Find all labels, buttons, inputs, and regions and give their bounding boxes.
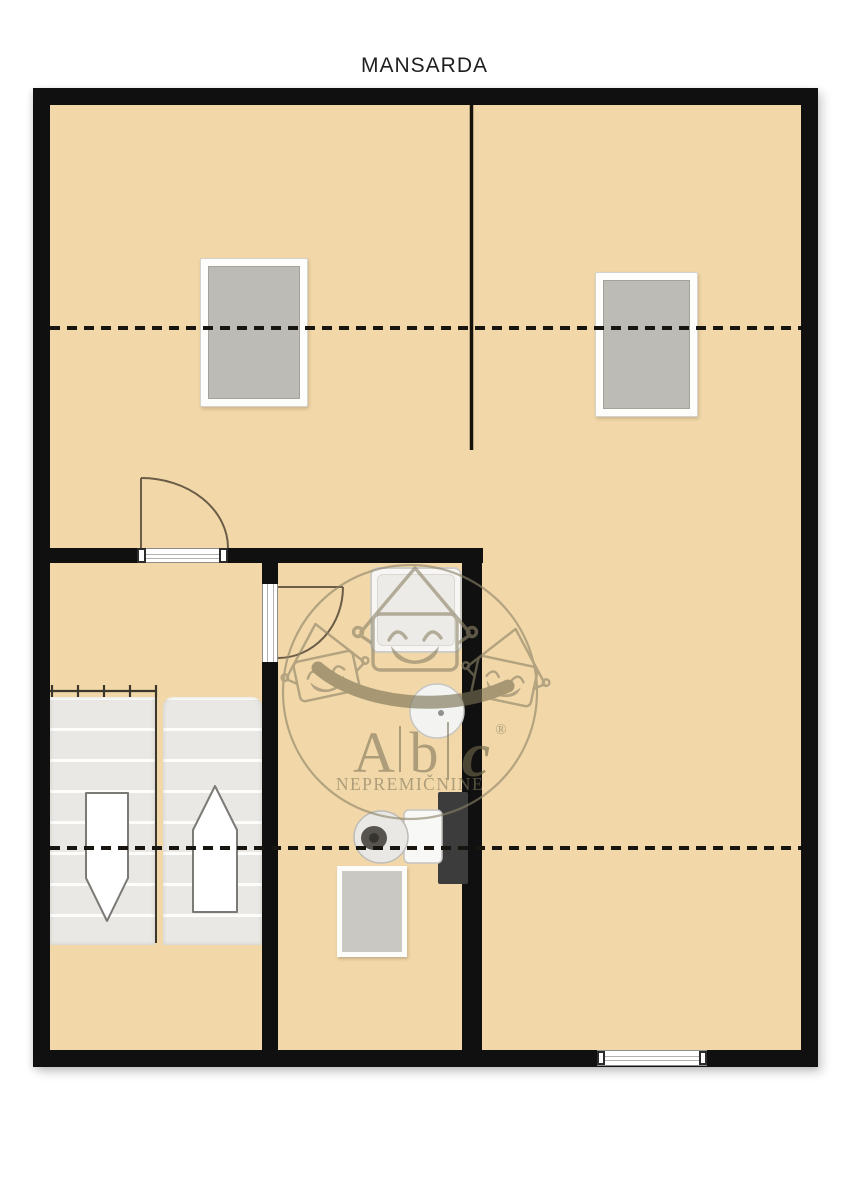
shower-tray [370,567,462,653]
stairs-flight-down [50,697,155,945]
page-title: MANSARDA [0,54,849,78]
skylight-window-right [595,272,698,417]
wall-segment [462,548,482,1050]
skylight-glass [603,280,690,409]
skylight-glass [208,266,300,399]
window-jamb [597,1051,605,1065]
wall-segment [50,548,137,563]
wall-segment [262,548,278,578]
door-jamb [219,548,228,563]
stairs-flight-up [163,697,262,945]
wall-segment [262,668,278,1050]
window-bottom [597,1050,707,1066]
shower-tray-base [377,574,455,646]
bath-mat [337,866,407,957]
floorplan-page: { "page": { "title": "MANSARDA", "backgr… [0,0,849,1200]
door-opening-hall [137,548,228,563]
door-jamb [137,548,146,563]
window-jamb [699,1051,707,1065]
door-jamb [262,662,278,668]
skylight-window-left [200,258,308,407]
door-jamb [262,578,278,584]
door-opening-bathroom [262,578,278,668]
